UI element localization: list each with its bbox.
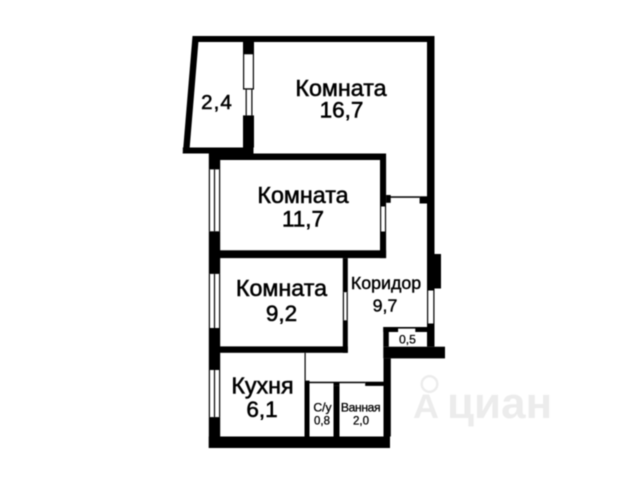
svg-text:16,7: 16,7 (320, 98, 364, 123)
svg-text:Ванная: Ванная (341, 401, 380, 415)
svg-text:0,5: 0,5 (399, 333, 416, 347)
svg-text:9,2: 9,2 (266, 301, 297, 326)
svg-text:9,7: 9,7 (373, 296, 398, 316)
svg-text:Коридор: Коридор (351, 273, 421, 293)
svg-text:0,8: 0,8 (314, 416, 330, 428)
svg-text:11,7: 11,7 (282, 207, 324, 232)
svg-text:2,4: 2,4 (201, 91, 233, 114)
svg-text:С/у: С/у (313, 401, 332, 415)
svg-text:6,1: 6,1 (246, 397, 277, 422)
svg-text:Кухня: Кухня (231, 373, 293, 399)
svg-text:А: А (413, 388, 439, 426)
svg-text:Комната: Комната (257, 182, 348, 208)
svg-text:2,0: 2,0 (353, 416, 369, 428)
svg-text:циан: циан (447, 379, 552, 428)
svg-text:Комната: Комната (236, 275, 327, 301)
